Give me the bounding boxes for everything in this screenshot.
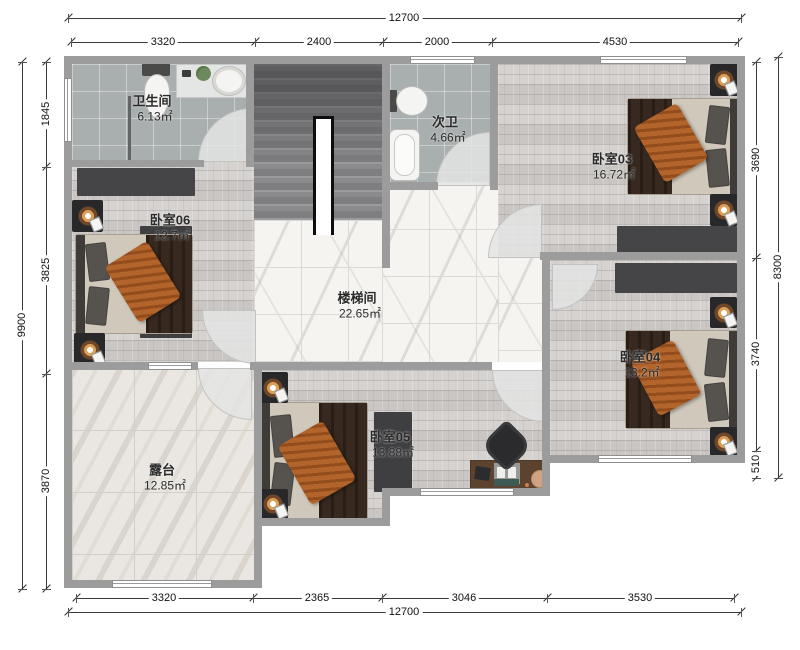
nightstand[interactable] — [710, 297, 737, 328]
wardrobe-bedroom04[interactable] — [615, 263, 737, 293]
dim-left-total: 9900 — [16, 310, 28, 340]
dim-left-seg: 3825 — [40, 255, 52, 285]
desk-dot — [525, 483, 529, 487]
pillow — [704, 382, 729, 422]
nightstand[interactable] — [710, 427, 737, 456]
window[interactable] — [420, 488, 514, 496]
dim-bottom-seg: 2365 — [302, 592, 332, 604]
room-area-bedroom04: 13.2㎡ — [624, 364, 659, 381]
pillow — [704, 338, 729, 378]
room-area-terrace: 12.85㎡ — [144, 477, 186, 494]
wall — [250, 362, 492, 370]
window[interactable] — [598, 455, 692, 463]
wall — [246, 56, 254, 167]
window[interactable] — [410, 56, 475, 64]
dim-left-seg: 3870 — [40, 466, 52, 496]
window[interactable] — [600, 56, 687, 64]
pillow — [705, 105, 730, 145]
wall — [382, 56, 390, 268]
pillow — [705, 148, 730, 188]
dim-top-seg: 2400 — [304, 36, 334, 48]
window[interactable] — [148, 362, 192, 370]
wall — [254, 368, 262, 588]
wardrobe-bedroom06[interactable] — [77, 168, 195, 196]
plant-icon[interactable] — [196, 66, 211, 81]
nightstand[interactable] — [72, 200, 103, 232]
room-area-guest-bath: 4.66㎡ — [430, 129, 465, 146]
floor-plan-canvas: 卫生间 6.13㎡ 次卫 4.66㎡ 卧室03 16.72㎡ 卧室06 12.7… — [0, 0, 800, 650]
pillow — [85, 242, 110, 282]
desk-mat — [494, 479, 519, 486]
pillow — [85, 286, 110, 326]
window[interactable] — [112, 580, 212, 588]
room-area-bedroom03: 16.72㎡ — [593, 166, 635, 183]
dim-left-seg: 1845 — [40, 99, 52, 129]
dim-right-total: 8300 — [772, 252, 784, 282]
laptop-icon — [474, 466, 491, 481]
dim-bottom-total: 12700 — [386, 606, 423, 618]
dim-top-seg: 2000 — [422, 36, 452, 48]
room-floor-stairwell-east[interactable] — [498, 256, 542, 362]
dim-right-seg: 3740 — [750, 339, 762, 369]
nightstand[interactable] — [710, 64, 738, 96]
toilet2-icon[interactable] — [396, 86, 428, 116]
wall — [64, 160, 204, 167]
bed-headboard — [76, 235, 85, 333]
bed-bedroom03[interactable] — [627, 98, 740, 195]
room-area-bedroom06: 12.7㎡ — [154, 227, 189, 244]
dim-top-total: 12700 — [386, 12, 423, 24]
dim-bottom-seg: 3320 — [149, 592, 179, 604]
room-area-stairwell: 22.65㎡ — [339, 305, 381, 322]
window[interactable] — [64, 78, 72, 142]
dim-top-seg: 4530 — [600, 36, 630, 48]
wall — [382, 182, 438, 190]
toiletry-items — [182, 70, 191, 77]
dim-top-seg: 3320 — [148, 36, 178, 48]
room-floor-stairwell-mid[interactable] — [382, 182, 498, 362]
dim-right-seg: 510 — [750, 452, 762, 476]
stair-railing — [313, 116, 334, 235]
wall — [254, 518, 390, 526]
wall — [542, 256, 550, 463]
nightstand[interactable] — [710, 194, 738, 226]
room-area-bedroom05: 13.88㎡ — [372, 444, 414, 461]
wardrobe-bedroom03[interactable] — [617, 226, 737, 254]
dim-bottom-seg: 3046 — [449, 592, 479, 604]
wall — [490, 56, 498, 190]
dim-bottom-seg: 3530 — [625, 592, 655, 604]
shower-partition — [128, 96, 131, 160]
dim-right-seg: 3690 — [750, 145, 762, 175]
bed-bedroom06[interactable] — [75, 234, 193, 334]
wall — [540, 252, 745, 260]
bathtub-icon[interactable] — [389, 129, 420, 181]
sink-icon[interactable] — [212, 66, 246, 96]
room-area-bathroom: 6.13㎡ — [137, 108, 172, 125]
